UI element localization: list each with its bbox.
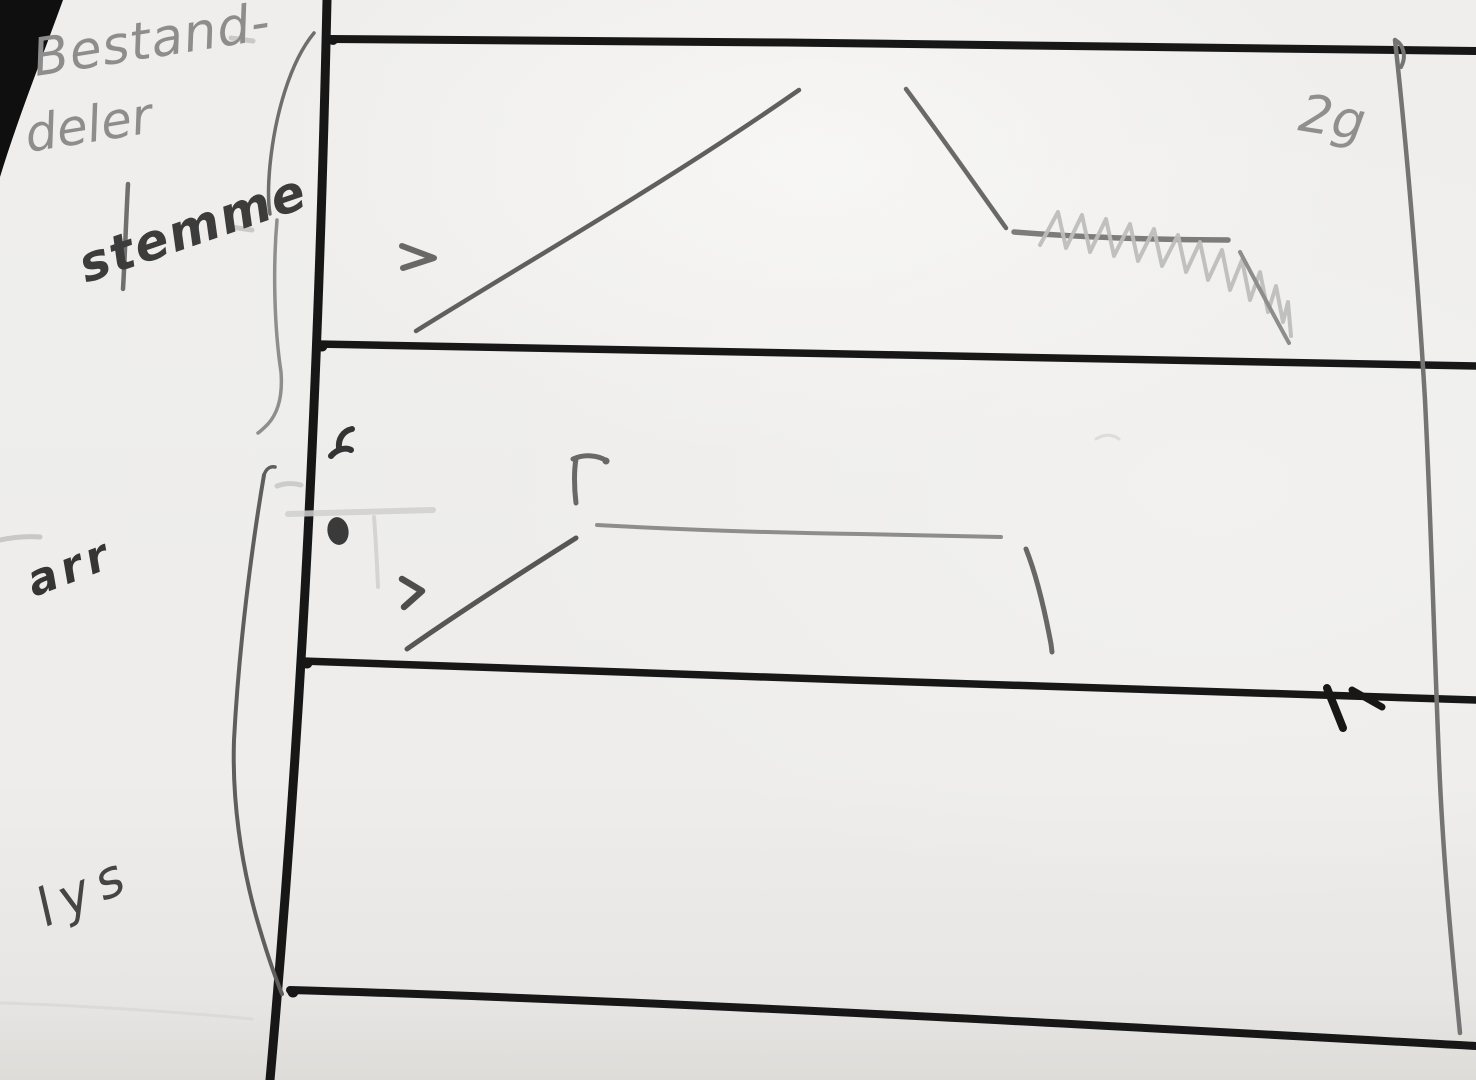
row2-faint-vertical-ghost xyxy=(374,517,378,587)
row2-end-curved-stroke xyxy=(1026,549,1052,652)
row2-dot-mark xyxy=(325,515,351,546)
row2-long-horizontal-stroke xyxy=(597,525,1001,537)
row2-f-mark-cross xyxy=(331,449,351,456)
rule-end-blob-3 xyxy=(302,658,313,669)
rule-end-blob-2 xyxy=(317,341,328,352)
lower-brace xyxy=(234,475,282,994)
eraser-smudge-mark xyxy=(1096,435,1119,439)
row2-faint-horizontal-smudge xyxy=(288,510,433,514)
table-top-rule xyxy=(329,39,1476,51)
row2-label-text: arr xyxy=(20,528,121,607)
row1-chevron-mark xyxy=(402,246,434,268)
row2-marks xyxy=(0,429,1119,652)
pencil-vertical-line xyxy=(1395,40,1460,1033)
rule-end-blob-1 xyxy=(328,35,338,45)
heading-line2-text: deler xyxy=(21,86,160,164)
upper-brace-bottom-segment xyxy=(258,220,281,433)
row2-corner-bracket-blob xyxy=(603,458,610,465)
row1-marks xyxy=(402,89,1291,343)
smudge-dash-3 xyxy=(277,484,301,486)
row1-scribble-diagonal-stroke xyxy=(1240,252,1289,343)
row1-falling-stroke xyxy=(906,89,1006,228)
table-rule-3 xyxy=(302,661,1476,700)
row2-corner-bracket xyxy=(573,456,607,503)
row2-chevron-mark xyxy=(402,579,422,607)
table-rule-2 xyxy=(317,344,1476,366)
row3-label-text: lys xyxy=(27,844,142,939)
rule-end-blob-4 xyxy=(288,987,299,998)
row1-rising-stroke xyxy=(416,90,799,331)
row1-label-text: stemme xyxy=(71,162,315,294)
row2-rising-stroke xyxy=(407,538,576,649)
left-edge-faint-dash xyxy=(0,537,40,540)
table-bottom-rule xyxy=(290,990,1476,1046)
paper-crease-line xyxy=(0,1003,252,1019)
row2-f-mark-stem xyxy=(339,429,352,448)
table-left-border-line xyxy=(270,0,327,1080)
table-grid xyxy=(270,0,1476,1080)
lower-brace-top-hook xyxy=(264,467,275,475)
corner-note-text: 2g xyxy=(1295,84,1370,154)
paper-sketch-photo: Bestand- deler stemme arr lys 2g xyxy=(0,0,1476,1080)
sketch-canvas: Bestand- deler stemme arr lys 2g xyxy=(0,0,1476,1080)
heading-line1-text: Bestand- xyxy=(29,0,275,89)
handwritten-labels: Bestand- deler stemme arr lys 2g xyxy=(20,0,1370,939)
